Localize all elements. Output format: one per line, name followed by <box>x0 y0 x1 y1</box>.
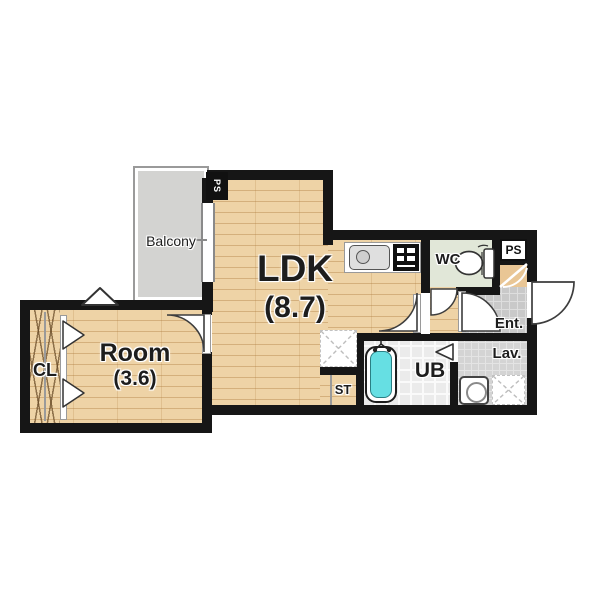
ldk-area-label: (8.7) <box>220 292 370 324</box>
wc-label: WC <box>432 252 464 268</box>
balcony-label: Balcony <box>133 234 209 249</box>
ldk-door-swing <box>379 293 417 331</box>
ldk-label: LDK <box>220 250 370 289</box>
room-area-label: (3.6) <box>70 368 200 390</box>
shaft-arc <box>503 268 527 287</box>
storage-label: ST <box>329 383 357 397</box>
unit-bath-label: UB <box>410 360 450 382</box>
front-door-swing <box>532 282 574 324</box>
tub-faucet-icon <box>374 340 391 351</box>
wc-door-swing <box>431 289 457 315</box>
room-label: Room <box>70 340 200 366</box>
bath-door-triangle <box>436 344 453 360</box>
lavatory-label: Lav. <box>485 346 529 362</box>
floor-plan: PS PS <box>0 0 600 600</box>
closet-label: CL <box>28 361 62 380</box>
room-wall-triangle-marker <box>82 288 118 305</box>
entrance-label: Ent. <box>489 316 529 332</box>
